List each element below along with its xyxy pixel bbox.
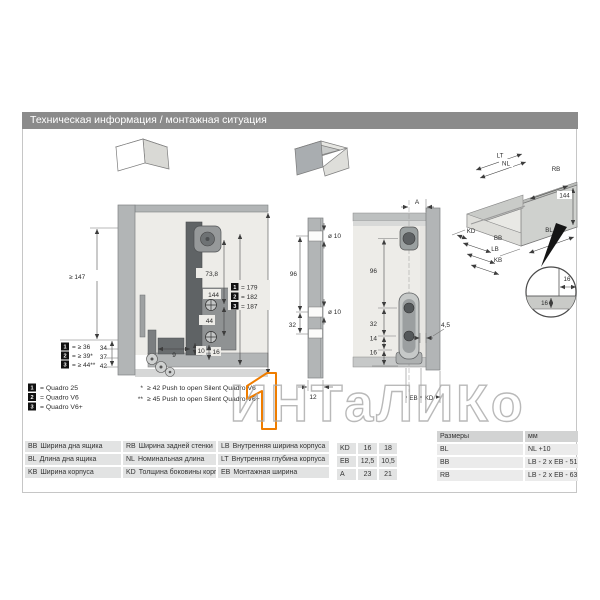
table-cell: BLДлина дна ящика [25, 454, 121, 465]
table-cell: LTВнутренняя глубина корпуса [218, 454, 329, 465]
dim-42: 42 [100, 363, 108, 370]
open-drawer-icon [116, 139, 169, 171]
depth-variant-legend: 1 = ≥ 36 2 = ≥ 39* 3 = ≥ 44** [61, 343, 96, 370]
label-bb: BB [494, 235, 502, 242]
dim-min-height: ≥ 147 [69, 274, 86, 281]
table-cell: 23 [358, 469, 377, 480]
dim-44: 44 [206, 318, 214, 325]
technical-info-page: Техническая информация / монтажная ситуа… [0, 0, 600, 600]
table-cell: RB [437, 470, 523, 481]
table-cell: BL [437, 444, 523, 455]
svg-text:1: 1 [30, 386, 33, 392]
label-lt: LT [497, 153, 504, 160]
height-variant-legend: 1 = 179 2 = 182 3 = 187 [228, 280, 270, 311]
dim-144: 144 [208, 292, 219, 299]
svg-text:3: 3 [30, 405, 33, 411]
label-nl: NL [502, 161, 510, 168]
rear-view-structure [353, 200, 440, 393]
detail-dim-16h: 16 [541, 300, 548, 307]
svg-text:= ≥ 44**: = ≥ 44** [72, 362, 96, 369]
detail-dim-16w: 16 [564, 276, 571, 283]
table-cell: KD [337, 443, 356, 454]
svg-text:= Quadro 25: = Quadro 25 [40, 385, 78, 392]
dimensions-table: Размеры мм BL NL +10 BB LB - 2 x EB - 51… [437, 431, 578, 481]
table-header-cell: мм [525, 431, 578, 442]
table-header-cell: Размеры [437, 431, 523, 442]
label-lb: LB [491, 246, 499, 253]
dim-hole-top: ø 10 [328, 233, 341, 240]
table-cell: EB [337, 456, 356, 467]
label-144: 144 [559, 193, 570, 200]
dim-73-8: 73,8 [205, 271, 218, 278]
svg-text:2: 2 [233, 295, 236, 301]
dim-10: 10 [198, 348, 206, 355]
svg-text:= 187: = 187 [241, 304, 258, 311]
table-cell: 16 [358, 443, 377, 454]
table-cell: NL +10 [525, 444, 578, 455]
dim-96-rear: 96 [370, 268, 378, 275]
svg-text:= ≥ 39*: = ≥ 39* [72, 353, 93, 360]
svg-text:= Quadro V6+: = Quadro V6+ [40, 404, 83, 411]
svg-text:2: 2 [30, 395, 33, 401]
svg-text:3: 3 [233, 304, 236, 310]
svg-text:1: 1 [233, 285, 236, 291]
dim-4-5: 4,5 [441, 322, 450, 329]
dim-14: 14 [370, 336, 378, 343]
dim-32-rear: 32 [370, 321, 378, 328]
drawer-front-icon [295, 141, 349, 176]
label-rb: RB [552, 166, 561, 173]
label-kb: KB [494, 257, 502, 264]
svg-text:2: 2 [63, 354, 66, 360]
watermark: ИНТаЛИКо [230, 373, 526, 432]
table-cell: 21 [379, 469, 397, 480]
table-cell: LB - 2 x EB - 51,5 [525, 457, 578, 468]
table-cell: RBШирина задней стенки [123, 441, 216, 452]
dim-34: 34 [100, 345, 108, 352]
table-cell: LBВнутренняя ширина корпуса [218, 441, 329, 452]
table-cell: LB - 2 x EB - 63 [525, 470, 578, 481]
dim-hole-mid: ø 10 [328, 309, 341, 316]
dim-37: 37 [100, 354, 108, 361]
dim-32-mid: 32 [289, 322, 297, 329]
dim-9: 9 [172, 352, 176, 359]
svg-text:*: * [140, 385, 143, 392]
table-cell: 12,5 [358, 456, 377, 467]
dim-96-mid: 96 [290, 271, 298, 278]
table-cell: BB [437, 457, 523, 468]
dim-a: A [415, 199, 420, 206]
table-cell: 18 [379, 443, 397, 454]
table-cell: KBШирина корпуса [25, 467, 121, 478]
svg-text:= ≥ 36: = ≥ 36 [72, 344, 91, 351]
technical-drawing: ≥ 147 34 37 42 1 = ≥ 36 2 = ≥ 39* 3 = ≥ … [22, 129, 578, 432]
values-table: KD 16 18 EB 12,5 10,5 A 23 21 [337, 443, 397, 480]
dim-16: 16 [213, 349, 221, 356]
svg-text:= Quadro V6: = Quadro V6 [40, 395, 79, 402]
table-cell: KDТолщина боковины корпуса [123, 467, 216, 478]
table-cell: BBШирина дна ящика [25, 441, 121, 452]
abbreviation-table: BBШирина дна ящика RBШирина задней стенк… [25, 441, 329, 478]
table-cell: 10,5 [379, 456, 397, 467]
svg-text:1: 1 [63, 345, 66, 351]
quadro-legend: 1 = Quadro 25 2 = Quadro V6 3 = Quadro V… [28, 384, 83, 412]
page-title: Техническая информация / монтажная ситуа… [22, 112, 578, 129]
svg-text:**: ** [138, 396, 144, 403]
watermark-text: ИНТаЛИКо [230, 375, 526, 432]
svg-text:3: 3 [63, 363, 66, 369]
table-cell: NLНоминальная длина [123, 454, 216, 465]
table-cell: A [337, 469, 356, 480]
front-panel-structure [308, 218, 323, 378]
dim-16-rear: 16 [370, 350, 378, 357]
label-kd: KD [467, 228, 476, 235]
svg-text:= 179: = 179 [241, 285, 258, 292]
svg-text:= 182: = 182 [241, 294, 258, 301]
table-cell: EBМонтажная ширина [218, 467, 329, 478]
label-bl: BL [545, 227, 553, 234]
